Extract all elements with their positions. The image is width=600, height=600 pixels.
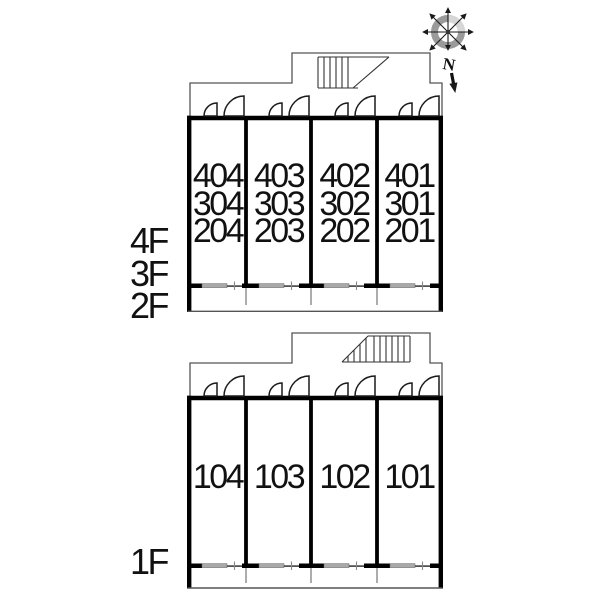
door-arc-icon xyxy=(269,103,282,116)
unit-numbers: 103 xyxy=(249,464,308,492)
unit-number: 104 xyxy=(192,464,243,492)
unit-number: 204 xyxy=(192,218,243,246)
window-icon xyxy=(202,282,242,290)
floor-label: 2F xyxy=(87,290,167,323)
door-arc-icon xyxy=(224,376,244,396)
north-indicator: N xyxy=(441,54,457,93)
unit-numbers: 101 xyxy=(380,464,438,492)
lower-floor-labels: 1F xyxy=(87,546,167,579)
stairs-icon xyxy=(318,57,389,88)
unit-numbers: 104 xyxy=(192,464,243,492)
door-arc-icon xyxy=(204,383,217,396)
door-arc-icon xyxy=(399,383,412,396)
stairs-icon xyxy=(342,336,410,362)
door-arc-icon xyxy=(335,383,348,396)
window-icon xyxy=(324,282,364,290)
door-arc-icon xyxy=(399,103,412,116)
door-arc-icon xyxy=(355,96,375,116)
window-icon xyxy=(390,282,430,290)
unit-numbers: 102 xyxy=(314,464,374,492)
door-arc-icon xyxy=(419,376,439,396)
balcony xyxy=(188,568,443,588)
window-icon xyxy=(202,562,242,570)
window-icon xyxy=(259,282,299,290)
unit-numbers: 401 301 201 xyxy=(380,163,438,246)
door-arc-icon xyxy=(269,383,282,396)
balcony xyxy=(188,288,443,311)
door-arc-icon xyxy=(419,96,439,116)
floor-label: 1F xyxy=(87,546,167,579)
window-icon xyxy=(324,562,364,570)
window-icon xyxy=(259,562,299,570)
door-arc-icon xyxy=(335,103,348,116)
floorplan-page: N xyxy=(0,0,600,600)
window-icon xyxy=(390,562,430,570)
unit-numbers: 404 304 204 xyxy=(192,163,243,246)
north-label: N xyxy=(441,54,457,75)
unit-number: 203 xyxy=(249,218,308,246)
door-arc-icon xyxy=(224,96,244,116)
unit-number: 201 xyxy=(380,218,438,246)
upper-floor-labels: 4F 3F 2F xyxy=(87,225,167,323)
door-arc-icon xyxy=(289,96,309,116)
north-arrow-icon xyxy=(449,82,457,93)
unit-numbers: 402 302 202 xyxy=(314,163,374,246)
unit-number: 101 xyxy=(380,464,438,492)
unit-number: 102 xyxy=(314,464,374,492)
compass-rose xyxy=(423,8,473,50)
door-arc-icon xyxy=(289,376,309,396)
unit-number: 202 xyxy=(314,218,374,246)
door-arc-icon xyxy=(204,103,217,116)
unit-numbers: 403 303 203 xyxy=(249,163,308,246)
door-arc-icon xyxy=(355,376,375,396)
unit-number: 103 xyxy=(249,464,308,492)
